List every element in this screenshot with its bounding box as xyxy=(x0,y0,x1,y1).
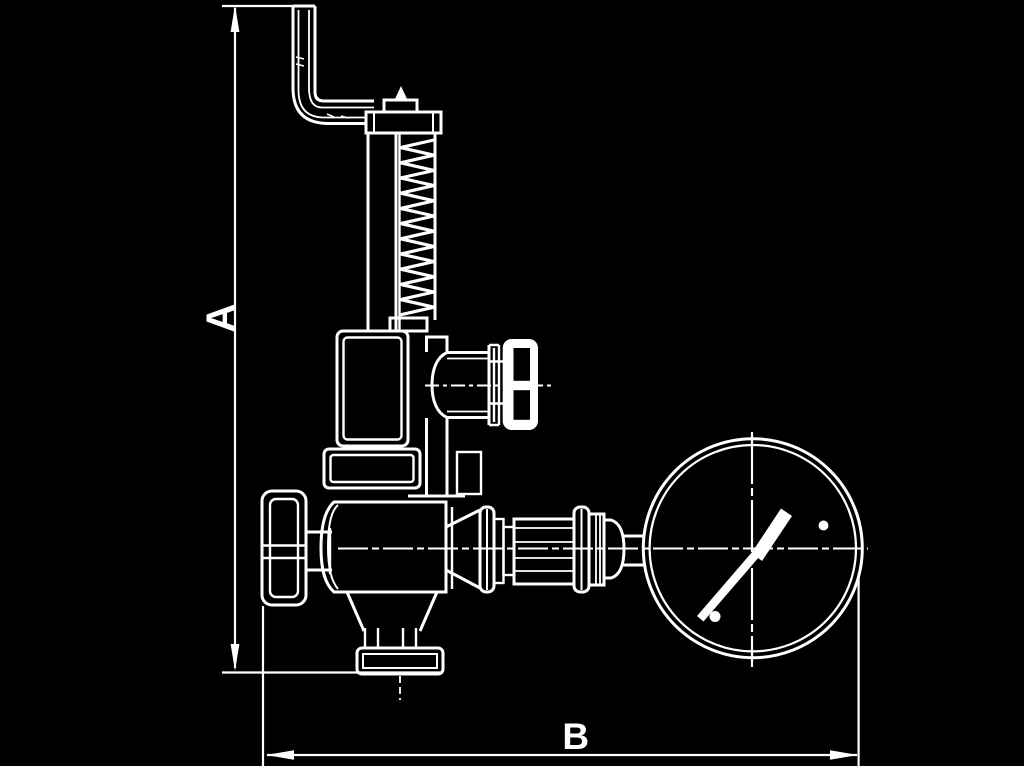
svg-text:A: A xyxy=(199,304,243,333)
svg-text:B: B xyxy=(562,716,589,757)
